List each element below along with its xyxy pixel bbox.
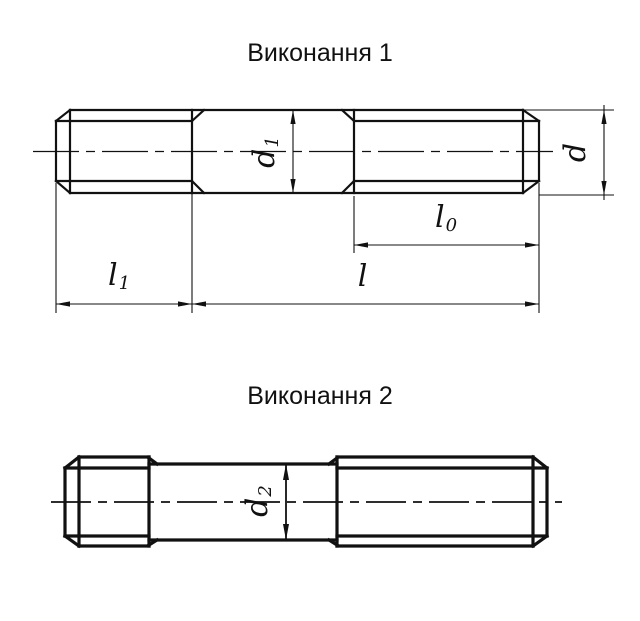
execution2-title: Виконання 2 [0, 384, 640, 409]
d2-arrow-up [283, 464, 289, 480]
l1-arrow-right [178, 301, 192, 306]
label-l-base: l [358, 259, 368, 294]
label-l1: l1 [108, 261, 130, 293]
technical-drawing-page: Виконання 1 Виконання 2 d1 d l0 l1 l d2 [0, 0, 640, 621]
stud-drawing-svg [0, 0, 640, 621]
left-runout-top [192, 110, 204, 121]
label-l1-sub: 1 [119, 273, 130, 294]
right-top-chamfer-2 [533, 457, 547, 468]
label-l0-base: l [435, 200, 445, 235]
execution1-title: Виконання 1 [0, 41, 640, 66]
d2-arrow-down [283, 524, 289, 540]
label-l0: l0 [435, 203, 457, 235]
right-runout-bottom [342, 181, 354, 193]
left-bottom-chamfer [56, 181, 70, 193]
label-d2-sub: 2 [255, 485, 276, 496]
label-d2: d2 [243, 485, 275, 517]
l0-arrow-right [525, 242, 539, 247]
right-runout-top [342, 110, 354, 121]
label-l0-sub: 0 [446, 215, 457, 236]
label-l1-base: l [108, 258, 118, 293]
d-arrow-up [601, 110, 606, 124]
l-arrow-left [192, 301, 206, 306]
label-l: l [358, 262, 369, 294]
d1-arrow-up [290, 110, 295, 124]
right-bottom-chamfer [523, 181, 539, 193]
l1-arrow-left [56, 301, 70, 306]
l0-arrow-left [354, 242, 368, 247]
left-runout-bottom [192, 181, 204, 193]
label-d-base: d [558, 143, 593, 162]
d1-arrow-down [290, 179, 295, 193]
left-top-chamfer [56, 110, 70, 121]
right-top-chamfer [523, 110, 539, 121]
label-d1-sub: 1 [262, 136, 283, 147]
l-arrow-right [525, 301, 539, 306]
label-d: d [561, 142, 593, 162]
label-d1-base: d [247, 149, 282, 168]
d-arrow-down [601, 181, 606, 195]
label-d1: d1 [250, 136, 282, 168]
left-top-chamfer-2 [65, 457, 79, 468]
label-d2-base: d [240, 498, 275, 517]
